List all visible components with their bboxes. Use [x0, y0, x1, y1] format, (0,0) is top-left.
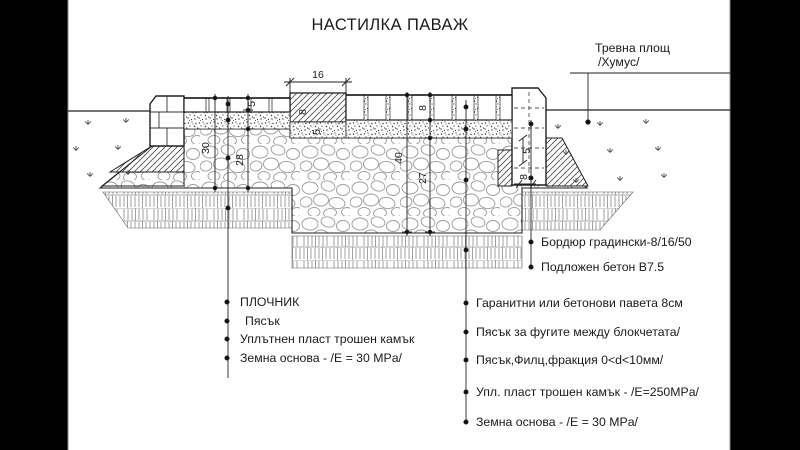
callout-curb: Бордюр градински-8/16/50: [541, 235, 692, 249]
slab-row: [184, 98, 290, 112]
pavement-section-drawing: 16 8 5 30 5 28 40 8 27 5 8 НАСТИЛКА ПАВА…: [0, 0, 800, 450]
drawing-title: НАСТИЛКА ПАВАЖ: [311, 16, 468, 34]
paver-row: [346, 95, 512, 120]
callout-bedding-concrete: Подложен бетон В7.5: [541, 260, 664, 274]
middle-curb: [290, 93, 346, 122]
right-curb: [512, 88, 546, 185]
dim-mid-curb-height: 8: [297, 109, 309, 115]
dim-left-stone: 28: [234, 154, 246, 166]
dim-left-surface: 5: [246, 101, 258, 107]
callout-left-heading: ПЛОЧНИК: [240, 295, 300, 309]
dim-right-total: 40: [393, 152, 405, 164]
dim-stone-depth: 27: [417, 172, 429, 184]
callout-left-sand: Пясък: [245, 314, 280, 328]
callout-right-joint-sand: Пясък за фугите между блокчетата/: [476, 325, 681, 339]
callout-right-bed-sand: Пясък,Филц,фракция 0<d<10мм/: [476, 353, 664, 367]
callout-left-stone: Уплътнен пласт трошен камък: [240, 332, 415, 346]
callout-right-subgrade: Земна основа - /Е = 30 MPa/: [476, 415, 639, 429]
dim-paver-height: 8: [417, 105, 429, 111]
callout-right-stone: Упл. пласт трошен камък - /Е=250MPa/: [476, 385, 700, 399]
grass-label-line1: Тревна площ: [595, 41, 670, 55]
callout-right-pavers: Гаранитни или бетонови павета 8см: [476, 296, 683, 310]
left-curb: [150, 96, 184, 146]
dim-curb-width: 16: [312, 69, 324, 81]
dim-left-total: 30: [200, 142, 212, 154]
dim-curb-detail-b: 8: [518, 174, 530, 180]
slide-frame: 16 8 5 30 5 28 40 8 27 5 8 НАСТИЛКА ПАВА…: [0, 0, 800, 450]
callout-left-subgrade: Земна основа - /Е = 30 MPa/: [240, 351, 403, 365]
grass-label-line2: /Хумус/: [598, 55, 640, 69]
dim-mid-curb-bed: 5: [311, 129, 323, 135]
